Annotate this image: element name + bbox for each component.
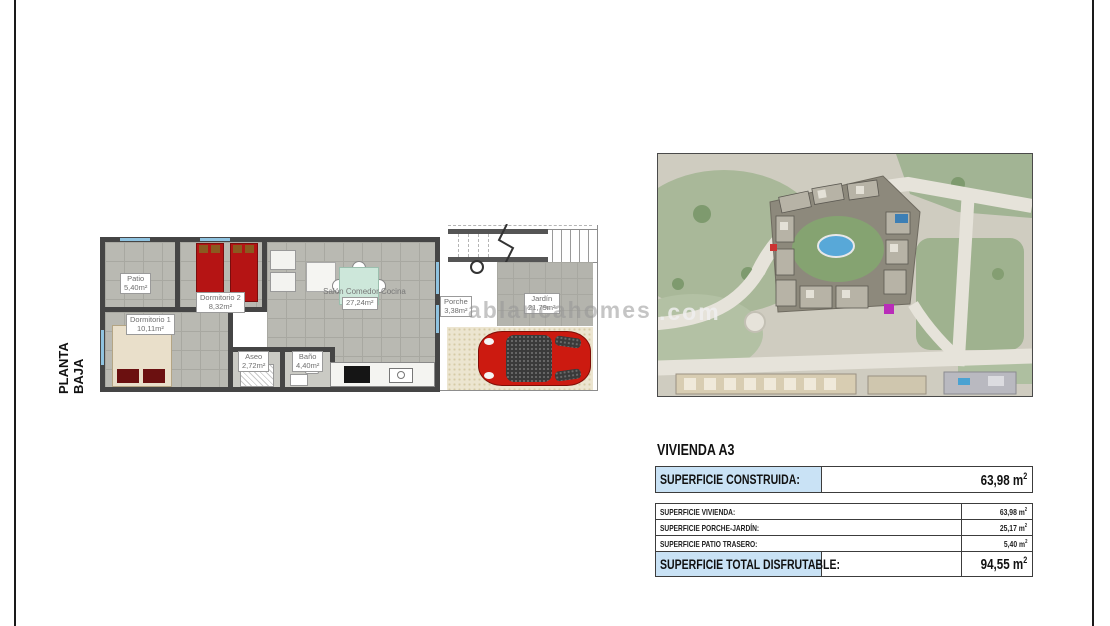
row-superficie-vivienda: SUPERFICIE VIVIENDA: 63,98 m2 [655,503,1033,520]
pillow [117,369,139,383]
stair-edge [548,229,597,230]
pillow [199,245,208,253]
room-label-living: Salón Comedor Cocina [292,287,437,296]
room-label-jardin: Jardín 21,79m² [524,293,560,314]
sofa-seat [270,250,296,270]
row-value: 5,40 m2 [962,539,1032,549]
plot-boundary-bottom [440,390,598,391]
stair-step [570,229,571,263]
row-label: SUPERFICIE PATIO TRASERO: [656,536,962,551]
window-bedroom2 [200,238,230,241]
row-label: SUPERFICIE TOTAL DISFRUTABLE: [656,552,822,576]
row-value: 63,98 m2 [927,471,1032,489]
room-label-patio: Patio 5,40m² [120,273,151,294]
room-area-living: 27,24m² [342,297,378,310]
car-headlight [484,338,494,345]
row-label: SUPERFICIE VIVIENDA: [656,504,962,519]
wall-left [100,237,105,392]
plot-boundary-right [597,225,598,390]
pillow [233,245,242,253]
row-value: 63,98 m2 [962,507,1032,517]
window-patio [120,238,150,241]
stair-step [579,229,580,263]
pillow [211,245,220,253]
brochure-page: PLANTA BAJA [0,0,1110,626]
row-superficie-total: SUPERFICIE TOTAL DISFRUTABLE: 94,55 m2 [655,552,1033,577]
wall-patio-divider [175,237,180,310]
row-label: SUPERFICIE PORCHE-JARDÍN: [656,520,962,535]
window-bedroom1 [101,330,104,365]
row-superficie-construida: SUPERFICIE CONSTRUIDA: 63,98 m2 [655,466,1033,493]
bath-sink [290,374,308,386]
car-roof [506,335,552,382]
room-label-bano: Baño 4,40m² [292,351,323,372]
row-label: SUPERFICIE CONSTRUIDA: [656,467,822,492]
room-label-bedroom2: Dormitorio 2 8,32m² [196,292,245,313]
car-top-view [478,331,591,386]
wall-bottom [100,387,440,392]
aerial-view-graphic [658,154,1032,396]
row-spacer [822,552,962,576]
wall-bedroom2-divider [262,237,267,312]
row-superficie-porche-jardin: SUPERFICIE PORCHE-JARDÍN: 25,17 m2 [655,520,1033,536]
pillow [245,245,254,253]
stair-step [552,229,553,263]
row-value: 94,55 m2 [962,555,1032,573]
room-label-aseo: Aseo 2,72m² [238,351,269,372]
column [470,260,484,274]
row-superficie-patio-trasero: SUPERFICIE PATIO TRASERO: 5,40 m2 [655,536,1033,552]
surface-summary: VIVIENDA A3 SUPERFICIE CONSTRUIDA: 63,98… [655,442,1033,577]
car-headlight [484,372,494,379]
pillow [143,369,165,383]
unit-title: VIVIENDA A3 [657,442,1033,460]
stair-dashed-top [448,225,592,227]
wall-top [100,237,440,242]
room-label-porche: Porche 3,38m² [440,296,472,317]
site-plan-image [657,153,1033,397]
row-value: 25,17 m2 [962,523,1032,533]
stair-step [561,229,562,263]
room-label-bedroom1: Dormitorio 1 10,11m² [126,314,175,335]
kitchen-counter [330,362,435,387]
stair-step [458,234,460,257]
sink-drain [397,371,405,379]
stair-step [468,234,470,257]
wall-aseo-divider [280,347,285,392]
stove [344,366,370,383]
stair-step [478,234,480,257]
table-gap [655,493,1033,503]
stair-step [488,234,490,257]
wall-bedroom1-divider [228,312,233,392]
window-living-2 [436,305,439,333]
stair-step [588,229,589,263]
